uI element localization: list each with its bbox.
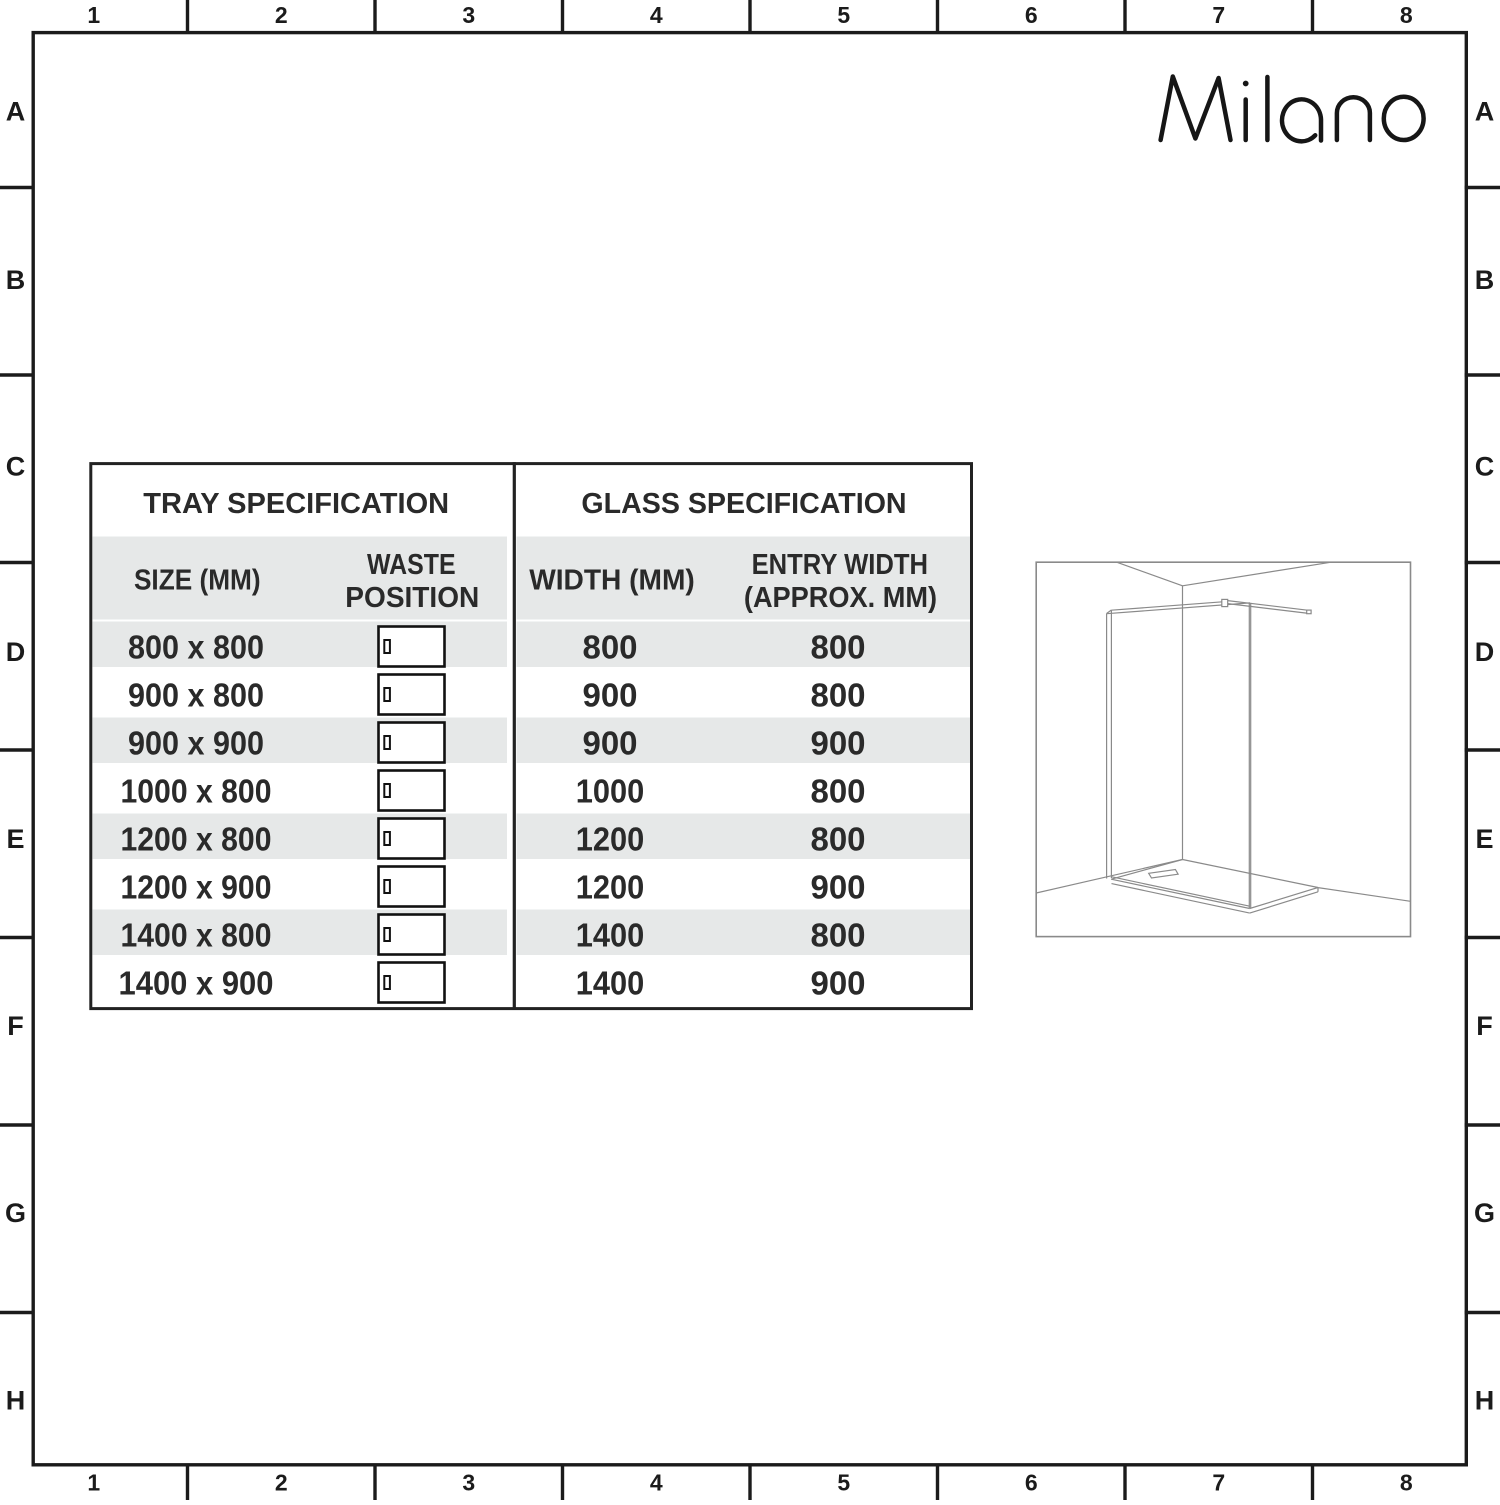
svg-text:800: 800 — [810, 916, 865, 953]
svg-text:H: H — [6, 1385, 26, 1415]
svg-text:5: 5 — [837, 1470, 850, 1496]
svg-text:1400 x 800: 1400 x 800 — [121, 916, 272, 953]
svg-text:F: F — [1476, 1011, 1493, 1041]
svg-text:900: 900 — [810, 868, 865, 905]
svg-text:3: 3 — [462, 2, 475, 28]
svg-text:8: 8 — [1400, 2, 1413, 28]
svg-text:1400: 1400 — [576, 964, 645, 1001]
svg-text:1000: 1000 — [576, 772, 645, 809]
svg-text:900 x 900: 900 x 900 — [128, 724, 264, 761]
svg-text:1000 x 800: 1000 x 800 — [121, 772, 272, 809]
svg-text:800: 800 — [810, 772, 865, 809]
svg-text:2: 2 — [275, 1470, 288, 1496]
svg-text:SIZE (MM): SIZE (MM) — [134, 565, 261, 597]
svg-text:A: A — [1475, 96, 1495, 126]
svg-text:A: A — [6, 96, 26, 126]
svg-text:7: 7 — [1212, 1470, 1225, 1496]
svg-text:H: H — [1475, 1385, 1495, 1415]
svg-text:1200 x 900: 1200 x 900 — [121, 868, 272, 905]
svg-text:GLASS SPECIFICATION: GLASS SPECIFICATION — [581, 488, 906, 520]
svg-text:E: E — [1475, 824, 1493, 854]
svg-text:B: B — [1475, 265, 1495, 295]
svg-text:TRAY SPECIFICATION: TRAY SPECIFICATION — [143, 488, 449, 520]
svg-text:F: F — [7, 1011, 24, 1041]
svg-text:1400: 1400 — [576, 916, 645, 953]
svg-text:1200 x 800: 1200 x 800 — [121, 820, 272, 857]
svg-text:4: 4 — [650, 1470, 663, 1496]
svg-text:900 x 800: 900 x 800 — [128, 676, 264, 713]
svg-text:800 x 800: 800 x 800 — [128, 628, 264, 665]
svg-text:1: 1 — [87, 1470, 100, 1496]
svg-text:7: 7 — [1212, 2, 1225, 28]
svg-text:1200: 1200 — [576, 820, 645, 857]
svg-text:6: 6 — [1025, 2, 1038, 28]
svg-text:D: D — [1475, 637, 1495, 667]
svg-text:C: C — [1475, 451, 1495, 481]
svg-text:5: 5 — [837, 2, 850, 28]
svg-text:3: 3 — [462, 1470, 475, 1496]
svg-text:(APPROX. MM): (APPROX. MM) — [744, 582, 937, 614]
svg-text:WASTE: WASTE — [367, 549, 456, 581]
svg-text:900: 900 — [582, 676, 637, 713]
svg-text:4: 4 — [650, 2, 663, 28]
svg-text:800: 800 — [810, 820, 865, 857]
svg-text:900: 900 — [582, 724, 637, 761]
svg-text:G: G — [1474, 1198, 1495, 1228]
svg-text:1: 1 — [87, 2, 100, 28]
svg-text:E: E — [6, 824, 24, 854]
svg-text:6: 6 — [1025, 1470, 1038, 1496]
svg-text:ENTRY WIDTH: ENTRY WIDTH — [752, 549, 928, 581]
svg-text:WIDTH (MM): WIDTH (MM) — [529, 565, 695, 597]
svg-text:G: G — [5, 1198, 26, 1228]
svg-text:900: 900 — [810, 724, 865, 761]
svg-text:800: 800 — [810, 676, 865, 713]
svg-text:800: 800 — [810, 628, 865, 665]
svg-text:1400 x 900: 1400 x 900 — [119, 964, 274, 1001]
svg-text:8: 8 — [1400, 1470, 1413, 1496]
svg-text:B: B — [6, 265, 26, 295]
svg-text:2: 2 — [275, 2, 288, 28]
svg-text:800: 800 — [582, 628, 637, 665]
svg-text:D: D — [6, 637, 26, 667]
svg-text:900: 900 — [810, 964, 865, 1001]
svg-text:C: C — [6, 451, 26, 481]
svg-text:1200: 1200 — [576, 868, 645, 905]
svg-text:POSITION: POSITION — [345, 582, 479, 614]
